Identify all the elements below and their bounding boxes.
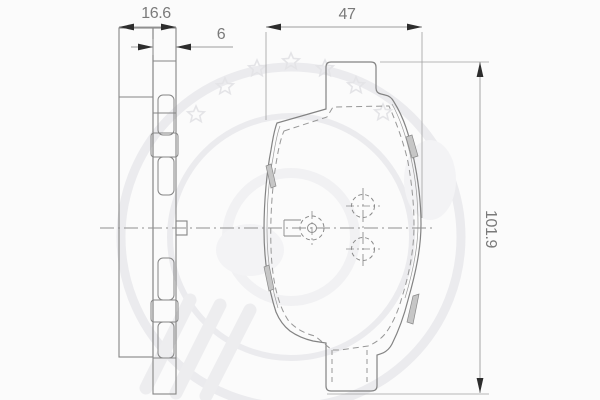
dimension-backplate-thickness: 6 [131,26,233,55]
side-view-upper-clip [151,95,178,195]
dim-label-height: 101.9 [482,210,499,249]
arrow-left-icon [266,24,281,31]
arrow-left-icon [176,44,191,51]
brake-pad-technical-drawing: 16.6 6 47 101.9 [0,0,600,400]
dimension-total-thickness: 16.6 [119,5,176,30]
front-view [264,62,421,391]
arrow-right-icon [407,24,422,31]
arrow-down-icon [477,378,484,393]
dim-label-total-thickness: 16.6 [141,5,171,22]
arrow-right-icon [138,44,153,51]
drawing-page: 16.6 6 47 101.9 [0,0,600,400]
dim-label-width: 47 [339,6,356,23]
arrow-up-icon [477,62,484,77]
front-view-backplate-outline [264,62,421,391]
arrow-right-icon [161,24,176,31]
dim-label-backplate-thickness: 6 [217,26,226,43]
optimal-logo-watermark [121,53,461,400]
arrow-left-icon [119,24,134,31]
